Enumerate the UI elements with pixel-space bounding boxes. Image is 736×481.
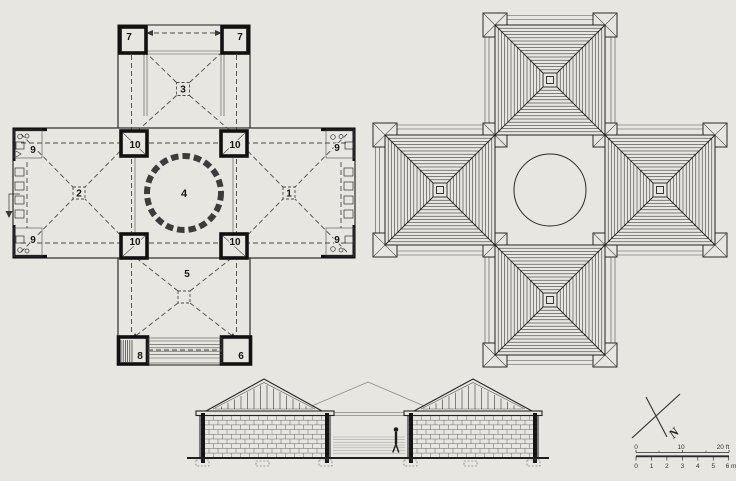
room-label-7-left: 7	[126, 32, 132, 43]
courtyard-ground-shading	[333, 437, 405, 453]
background-pyramid-roof	[300, 382, 436, 411]
scale-m-5: 5	[711, 463, 715, 470]
scale-m-2: 2	[665, 463, 669, 470]
architectural-sheet: 7 7 3 2 1 4 5 8 6 10 10 10 10 9 9 9 9	[0, 0, 736, 481]
roof-pyramid-south	[495, 245, 605, 355]
scale-m-4: 4	[696, 463, 700, 470]
floor-plan: 7 7 3 2 1 4 5 8 6 10 10 10 10 9 9 9 9	[6, 25, 356, 365]
room-label-2: 2	[76, 189, 82, 200]
drawing-canvas: 7 7 3 2 1 4 5 8 6 10 10 10 10 9 9 9 9	[0, 0, 736, 481]
scale-ft-0: 0	[634, 444, 638, 451]
section-right-pavilion	[404, 379, 542, 466]
room-label-10-tr: 10	[229, 140, 241, 151]
roof-pyramid-east	[605, 135, 715, 245]
top-wing-colonnade	[144, 51, 224, 116]
room-label-9-tr: 9	[334, 143, 340, 154]
section-drawing	[187, 379, 549, 466]
pavilion-7-right	[222, 27, 248, 53]
north-arrow: N	[632, 394, 683, 442]
column	[325, 413, 329, 463]
entry-steps	[148, 341, 222, 358]
scale-m-0: 0	[634, 463, 638, 470]
roof-plan	[373, 13, 727, 367]
room-label-8: 8	[137, 351, 143, 362]
roof-pyramid-west	[385, 135, 495, 245]
room-label-5: 5	[184, 269, 190, 280]
room-label-9-br: 9	[334, 235, 340, 246]
room-label-10-tl: 10	[129, 140, 141, 151]
column	[533, 413, 537, 463]
room-label-3: 3	[180, 85, 186, 96]
room-label-10-br: 10	[229, 237, 241, 248]
column	[409, 413, 413, 463]
court-circle	[514, 154, 586, 226]
room-label-4: 4	[181, 188, 188, 200]
room-label-7-right: 7	[237, 32, 243, 43]
room-label-10-bl: 10	[129, 237, 141, 248]
scale-m-6: 6 m	[726, 463, 736, 470]
scale-m-1: 1	[650, 463, 654, 470]
room-label-9-tl: 9	[30, 145, 36, 156]
roof-pyramid-north	[495, 25, 605, 135]
scale-ft-20: 20 ft	[717, 444, 730, 451]
room-label-9-bl: 9	[30, 235, 36, 246]
north-label: N	[665, 424, 683, 442]
section-left-pavilion	[196, 379, 334, 466]
scale-bar: 0 10 20 ft 0 1 2 3 4 5 6 m	[634, 444, 736, 470]
compass-line-short	[646, 397, 667, 437]
column	[201, 413, 205, 463]
scale-ft-10: 10	[677, 444, 685, 451]
scale-m-3: 3	[681, 463, 685, 470]
room-label-6: 6	[238, 351, 244, 362]
room-label-1: 1	[286, 189, 292, 200]
pavilion-7-left	[120, 27, 146, 53]
truss-roof-left	[206, 379, 322, 411]
